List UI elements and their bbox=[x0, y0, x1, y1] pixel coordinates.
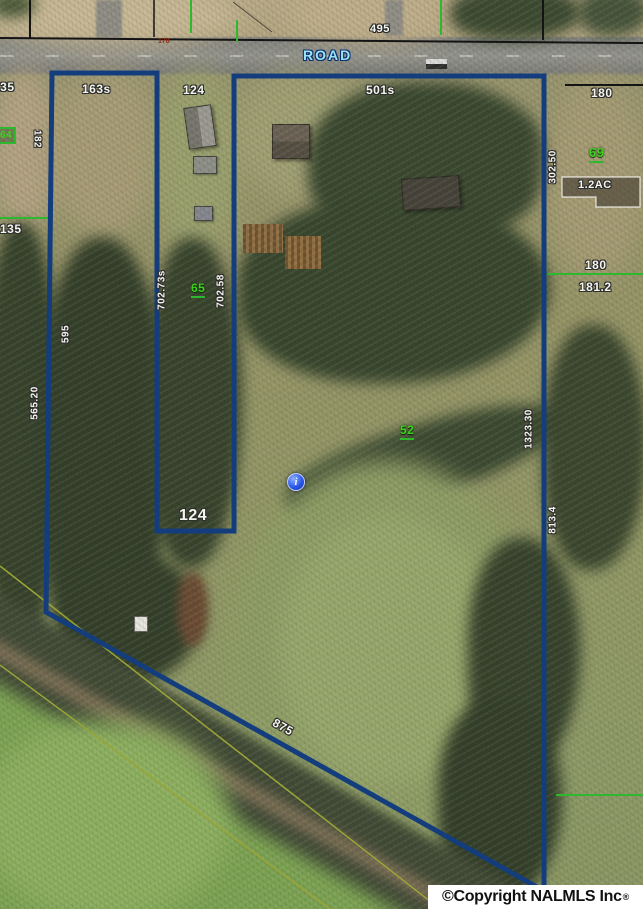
map-canvas[interactable]: ROAD 495 178 135 163s 124 501s 180 64 18… bbox=[0, 0, 643, 909]
dimension-label: 178 bbox=[158, 38, 170, 45]
tree-cluster bbox=[450, 0, 582, 40]
truck-roof bbox=[426, 59, 447, 64]
garden-plot bbox=[243, 224, 283, 253]
dead-tree-patch bbox=[178, 572, 208, 646]
white-shack bbox=[134, 616, 148, 632]
barn bbox=[272, 124, 310, 159]
dimension-label: 124 bbox=[179, 507, 207, 525]
copyright-bar: ©Copyright NALMLS Inc® bbox=[428, 885, 643, 909]
info-marker-icon[interactable]: i bbox=[287, 473, 305, 491]
dimension-label: 1323.30 bbox=[524, 409, 535, 449]
dimension-label: 182 bbox=[32, 130, 43, 148]
dimension-label: 181.2 bbox=[579, 280, 612, 294]
registered-mark: ® bbox=[623, 892, 629, 902]
dimension-label: 163s bbox=[82, 82, 111, 96]
dimension-label: 124 bbox=[183, 83, 205, 97]
dimension-label: 135 bbox=[0, 80, 15, 94]
house-roof bbox=[183, 104, 217, 149]
acreage-label: 1.2AC bbox=[578, 179, 612, 191]
dimension-label: 135 bbox=[0, 222, 22, 236]
shed bbox=[193, 156, 217, 174]
dimension-label: 501s bbox=[366, 83, 395, 97]
parcel-number-label: 52 bbox=[400, 423, 414, 440]
tree-cluster bbox=[238, 198, 550, 383]
road-stub bbox=[96, 0, 122, 38]
dimension-label: 702.58 bbox=[216, 274, 227, 308]
dimension-label: 302.50 bbox=[548, 150, 559, 184]
road-name-label: ROAD bbox=[303, 47, 352, 63]
dimension-label: 495 bbox=[370, 23, 390, 35]
shed bbox=[194, 206, 213, 221]
copyright-text: ©Copyright NALMLS Inc bbox=[442, 888, 622, 906]
dimension-label: 595 bbox=[61, 325, 72, 343]
parcel-number-label: 65 bbox=[191, 281, 205, 298]
dimension-label: 180 bbox=[585, 258, 607, 272]
outbuilding bbox=[401, 175, 461, 211]
parcel-number-label: 69 bbox=[589, 145, 604, 163]
truck-on-road bbox=[426, 59, 447, 69]
dimension-label: 813.4 bbox=[548, 506, 559, 534]
parcel-number-badge: 64 bbox=[0, 127, 16, 144]
dimension-label: 180 bbox=[591, 86, 613, 100]
tree-cluster bbox=[578, 0, 643, 36]
dimension-label: 702.73s bbox=[157, 270, 168, 310]
garden-plot bbox=[285, 236, 321, 269]
dimension-label: 565.20 bbox=[30, 386, 41, 420]
info-marker-glyph: i bbox=[294, 477, 297, 488]
dirt-field bbox=[290, 0, 450, 43]
